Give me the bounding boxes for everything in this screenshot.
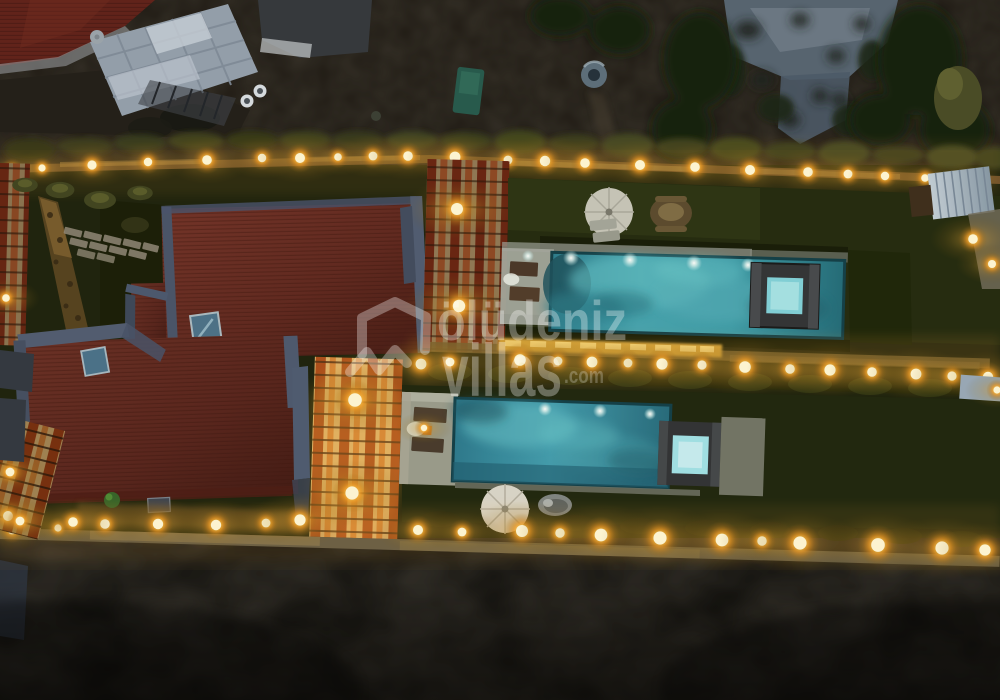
svg-text:villas: villas [442, 329, 562, 412]
svg-text:.com: .com [564, 363, 604, 388]
